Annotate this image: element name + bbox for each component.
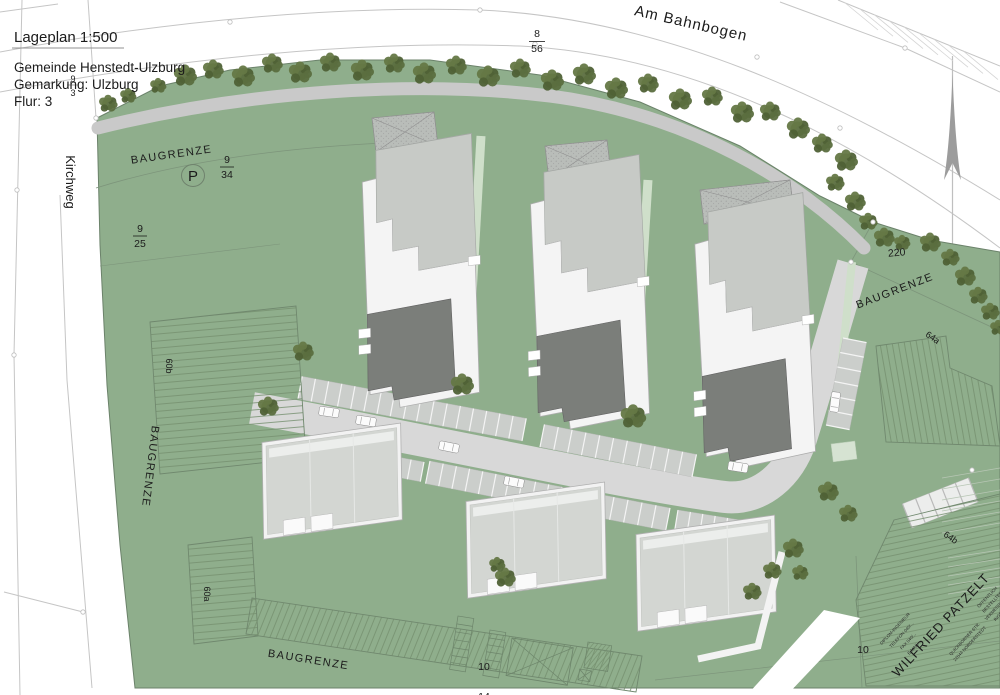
label-parcel-10-center: 10: [478, 661, 490, 673]
label-parcel-9-34-den: 34: [221, 169, 233, 181]
site-plan-canvas: 9 3 Lageplan 1:500 Gemeinde Henstedt-Ulz…: [0, 0, 1000, 695]
parking-symbol: P: [188, 168, 198, 185]
label-parcel-8-56-den: 56: [531, 43, 543, 55]
boundary-node: [838, 126, 842, 130]
boundary-node: [903, 46, 907, 50]
boundary-node: [755, 55, 759, 59]
label-parcel-9-25-num: 9: [137, 223, 143, 235]
boundary-node: [81, 610, 85, 614]
building-new-2: [525, 154, 652, 434]
site-plan-page: 9 3 Lageplan 1:500 Gemeinde Henstedt-Ulz…: [0, 0, 1000, 695]
boundary-node: [12, 353, 16, 357]
label-parcel-8-56-num: 8: [534, 28, 540, 40]
boundary-node: [94, 116, 98, 120]
building-south-2: [466, 482, 606, 598]
label-parcel-9-25-den: 25: [134, 238, 146, 250]
building-south-3: [636, 515, 776, 631]
label-parcel-60b: 60b: [164, 358, 174, 373]
page-title: Lageplan 1:500: [14, 29, 117, 46]
boundary-node: [849, 260, 853, 264]
boundary-node: [15, 188, 19, 192]
label-parcel-9-34-num: 9: [224, 154, 230, 166]
building-new-3: [689, 192, 818, 475]
label-parcel-14-clipped: 14: [478, 691, 490, 695]
street-name-kirchweg: Kirchweg: [63, 155, 78, 208]
label-municipality: Gemeinde Henstedt-Ulzburg: [14, 60, 185, 75]
label-parcel-220: 220: [887, 246, 906, 259]
label-district: Gemarkung: Ulzburg: [14, 77, 139, 92]
label-flur: Flur: 3: [14, 94, 52, 109]
boundary-node: [871, 220, 875, 224]
label-parcel-10-right: 10: [857, 644, 869, 656]
boundary-node: [228, 20, 232, 24]
building-south-1: [262, 423, 402, 539]
boundary-node: [970, 468, 974, 472]
label-parcel-60a: 60a: [202, 586, 212, 601]
boundary-node: [478, 8, 482, 12]
